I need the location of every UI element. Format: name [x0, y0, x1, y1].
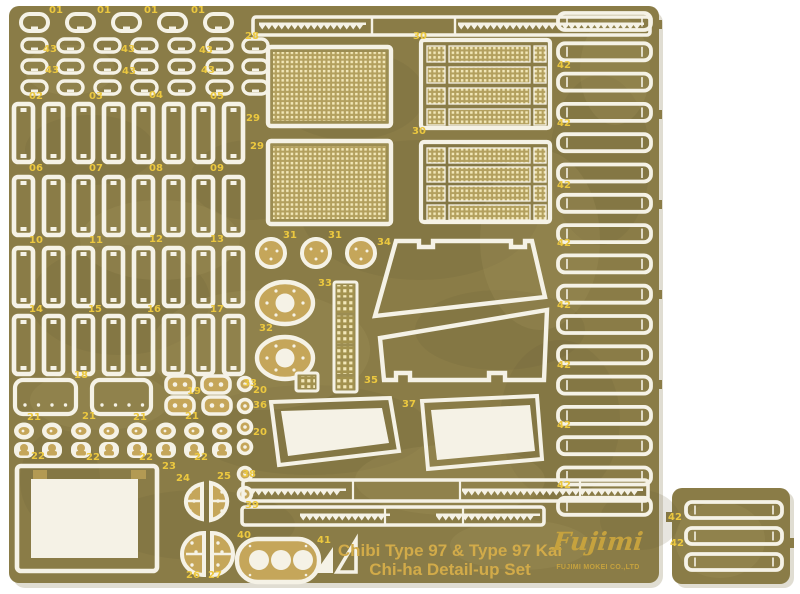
frame-23 [17, 466, 157, 571]
fujimi-tagline: FUJIMI MOKEI CO.,LTD [548, 564, 648, 571]
fujimi-logo: Fujimi [546, 527, 649, 556]
caps-31 [257, 237, 375, 269]
oval-plate-40 [237, 539, 319, 582]
photo-etch-sheet-scan: 0101010143434343434302030405060708091011… [0, 0, 800, 594]
parts-artwork [0, 0, 800, 594]
